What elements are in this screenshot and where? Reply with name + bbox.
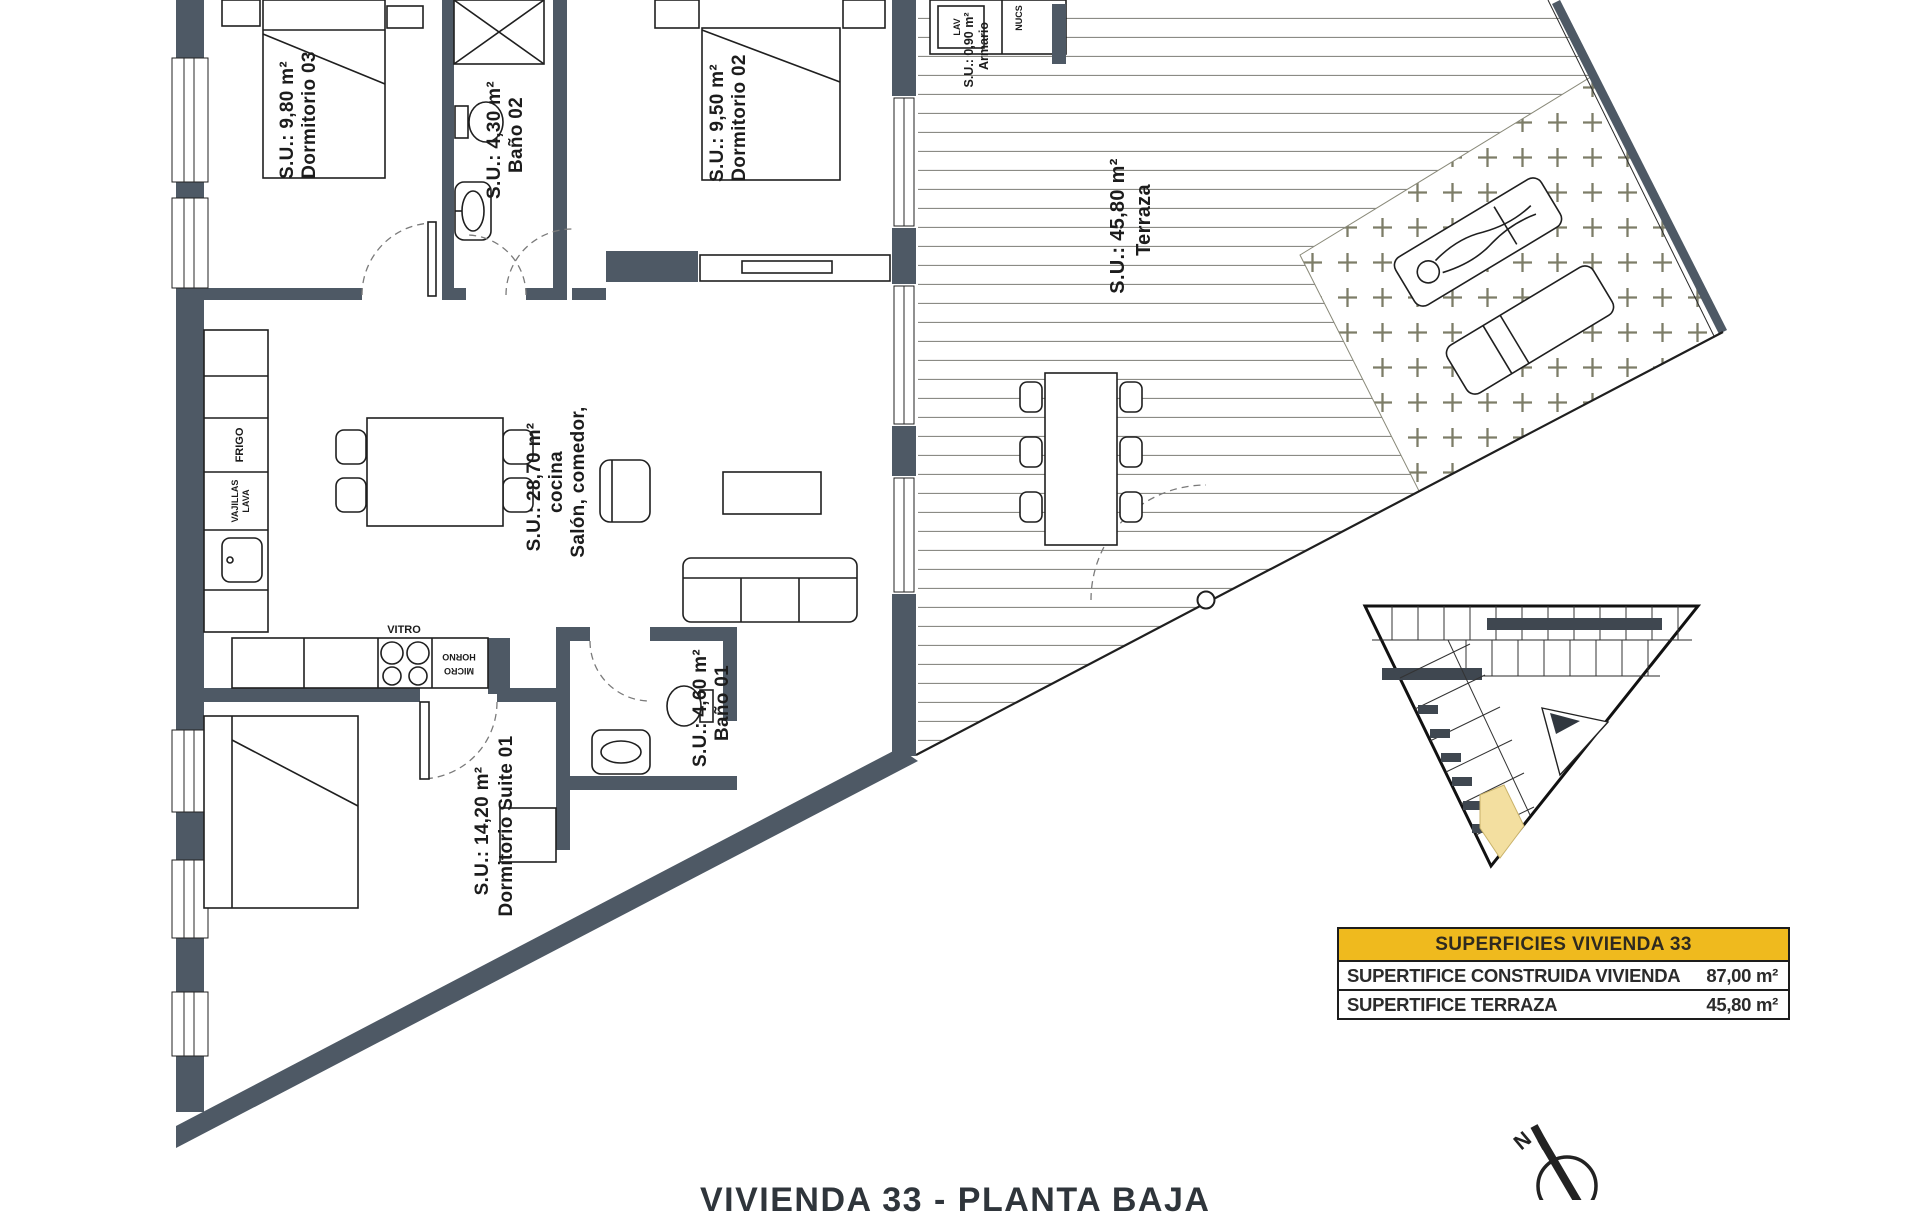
summary-row-value: 45,80 m²: [1706, 994, 1778, 1016]
room-dormitorio-suite-01: Dormitorio Suite 01 S.U.: 14,20 m²: [204, 702, 556, 916]
terraza-gate-handle: [1198, 592, 1215, 609]
sink-icon: [592, 730, 650, 774]
frigo-label: FRIGO: [234, 427, 246, 462]
sliding-door-icon: [894, 286, 914, 424]
nucs-label: NUCS: [1014, 5, 1024, 31]
armchair-icon: [600, 460, 650, 522]
bed-icon: [204, 716, 358, 908]
terraza-label: Terraza: [1133, 184, 1155, 256]
north-label: N: [1510, 1127, 1536, 1154]
shower-icon: [454, 0, 544, 64]
armario-area-label: S.U.: 0,90 m²: [962, 12, 976, 87]
kitchen-sink-icon: [222, 538, 262, 582]
room-dormitorio-02: Dormitorio 02 S.U.: 9,50 m²: [655, 0, 885, 182]
surface-summary-table: SUPERFICIES VIVIENDA 33 SUPERTIFICE CONS…: [1337, 927, 1790, 1020]
plan-title: VIVIENDA 33 - PLANTA BAJA: [700, 1181, 1200, 1220]
horno-label-2: MICRO: [444, 666, 474, 676]
window-icon: [172, 992, 208, 1056]
terrace-glass-doors: [894, 98, 914, 592]
dormitorio03-area-label: S.U.: 9,80 m²: [277, 61, 298, 179]
salon-area-label: S.U.: 28,70 m²: [524, 423, 545, 552]
armario-label: Armario: [977, 22, 991, 70]
room-salon-comedor-cocina: FRIGO LAVA VAJILLAS VITRO HORNO MICRO: [204, 255, 890, 688]
door-leaf: [420, 702, 429, 779]
suite01-label: Dormitorio Suite 01: [496, 735, 517, 916]
lav-label: LAV: [952, 18, 962, 35]
sliding-door-icon: [894, 478, 914, 592]
bed-icon: [222, 0, 423, 178]
door-swing-arc: [362, 223, 434, 295]
kitchen-counter: VITRO HORNO MICRO: [232, 624, 488, 688]
summary-row-value: 87,00 m²: [1706, 965, 1778, 987]
lava-vajillas-label-2: VAJILLAS: [230, 480, 240, 523]
window-icon: [172, 860, 208, 938]
dining-set-icon: [336, 418, 533, 526]
room-bano-02: Baño 02 S.U.: 4,30 m²: [454, 0, 544, 240]
window-icon: [172, 58, 208, 182]
salon-label-2: cocina: [546, 451, 567, 513]
sliding-door-icon: [894, 98, 914, 226]
summary-row-label: SUPERTIFICE TERRAZA: [1347, 994, 1557, 1016]
room-dormitorio-03: Dormitorio 03 S.U.: 9,80 m²: [222, 0, 423, 179]
horno-label-1: HORNO: [442, 652, 476, 662]
bano01-label: Baño 01: [712, 665, 733, 741]
room-bano-01: Baño 01 S.U.: 4,60 m²: [590, 641, 733, 774]
sofa-icon: [683, 558, 857, 622]
door-leaf: [428, 222, 436, 296]
summary-table-row: SUPERTIFICE TERRAZA 45,80 m²: [1339, 989, 1788, 1018]
window-icon: [172, 730, 208, 812]
door-swing-arc: [590, 641, 650, 701]
vitro-label: VITRO: [387, 624, 421, 636]
suite01-area-label: S.U.: 14,20 m²: [472, 767, 493, 896]
bano01-area-label: S.U.: 4,60 m²: [690, 649, 711, 767]
salon-label-1: Salón, comedor,: [568, 406, 589, 557]
summary-table-header: SUPERFICIES VIVIENDA 33: [1339, 929, 1788, 962]
outdoor-dining-set-icon: [1020, 373, 1142, 545]
floor-plan-canvas: Terraza S.U.: 45,80 m² LAV NUCS Armario …: [0, 0, 1920, 1200]
north-compass-icon: N: [1510, 1126, 1596, 1200]
kitchen-column: FRIGO LAVA VAJILLAS: [204, 330, 268, 632]
dormitorio02-label: Dormitorio 02: [729, 54, 750, 181]
site-plan-minimap: [1365, 606, 1698, 866]
coffee-table-icon: [723, 472, 821, 514]
summary-table-row: SUPERTIFICE CONSTRUIDA VIVIENDA 87,00 m²: [1339, 962, 1788, 989]
terraza-area-label: S.U.: 45,80 m²: [1107, 158, 1129, 293]
summary-row-label: SUPERTIFICE CONSTRUIDA VIVIENDA: [1347, 965, 1680, 987]
bano02-area-label: S.U.: 4,30 m²: [484, 81, 505, 199]
sideboard-icon: [700, 255, 890, 281]
dormitorio02-area-label: S.U.: 9,50 m²: [707, 64, 728, 182]
bano02-label: Baño 02: [506, 97, 527, 173]
door-swing-arc: [466, 235, 526, 295]
bed-icon: [655, 0, 885, 180]
lava-vajillas-label-1: LAVA: [241, 489, 251, 513]
dormitorio03-label: Dormitorio 03: [299, 51, 320, 178]
window-icon: [172, 198, 208, 288]
